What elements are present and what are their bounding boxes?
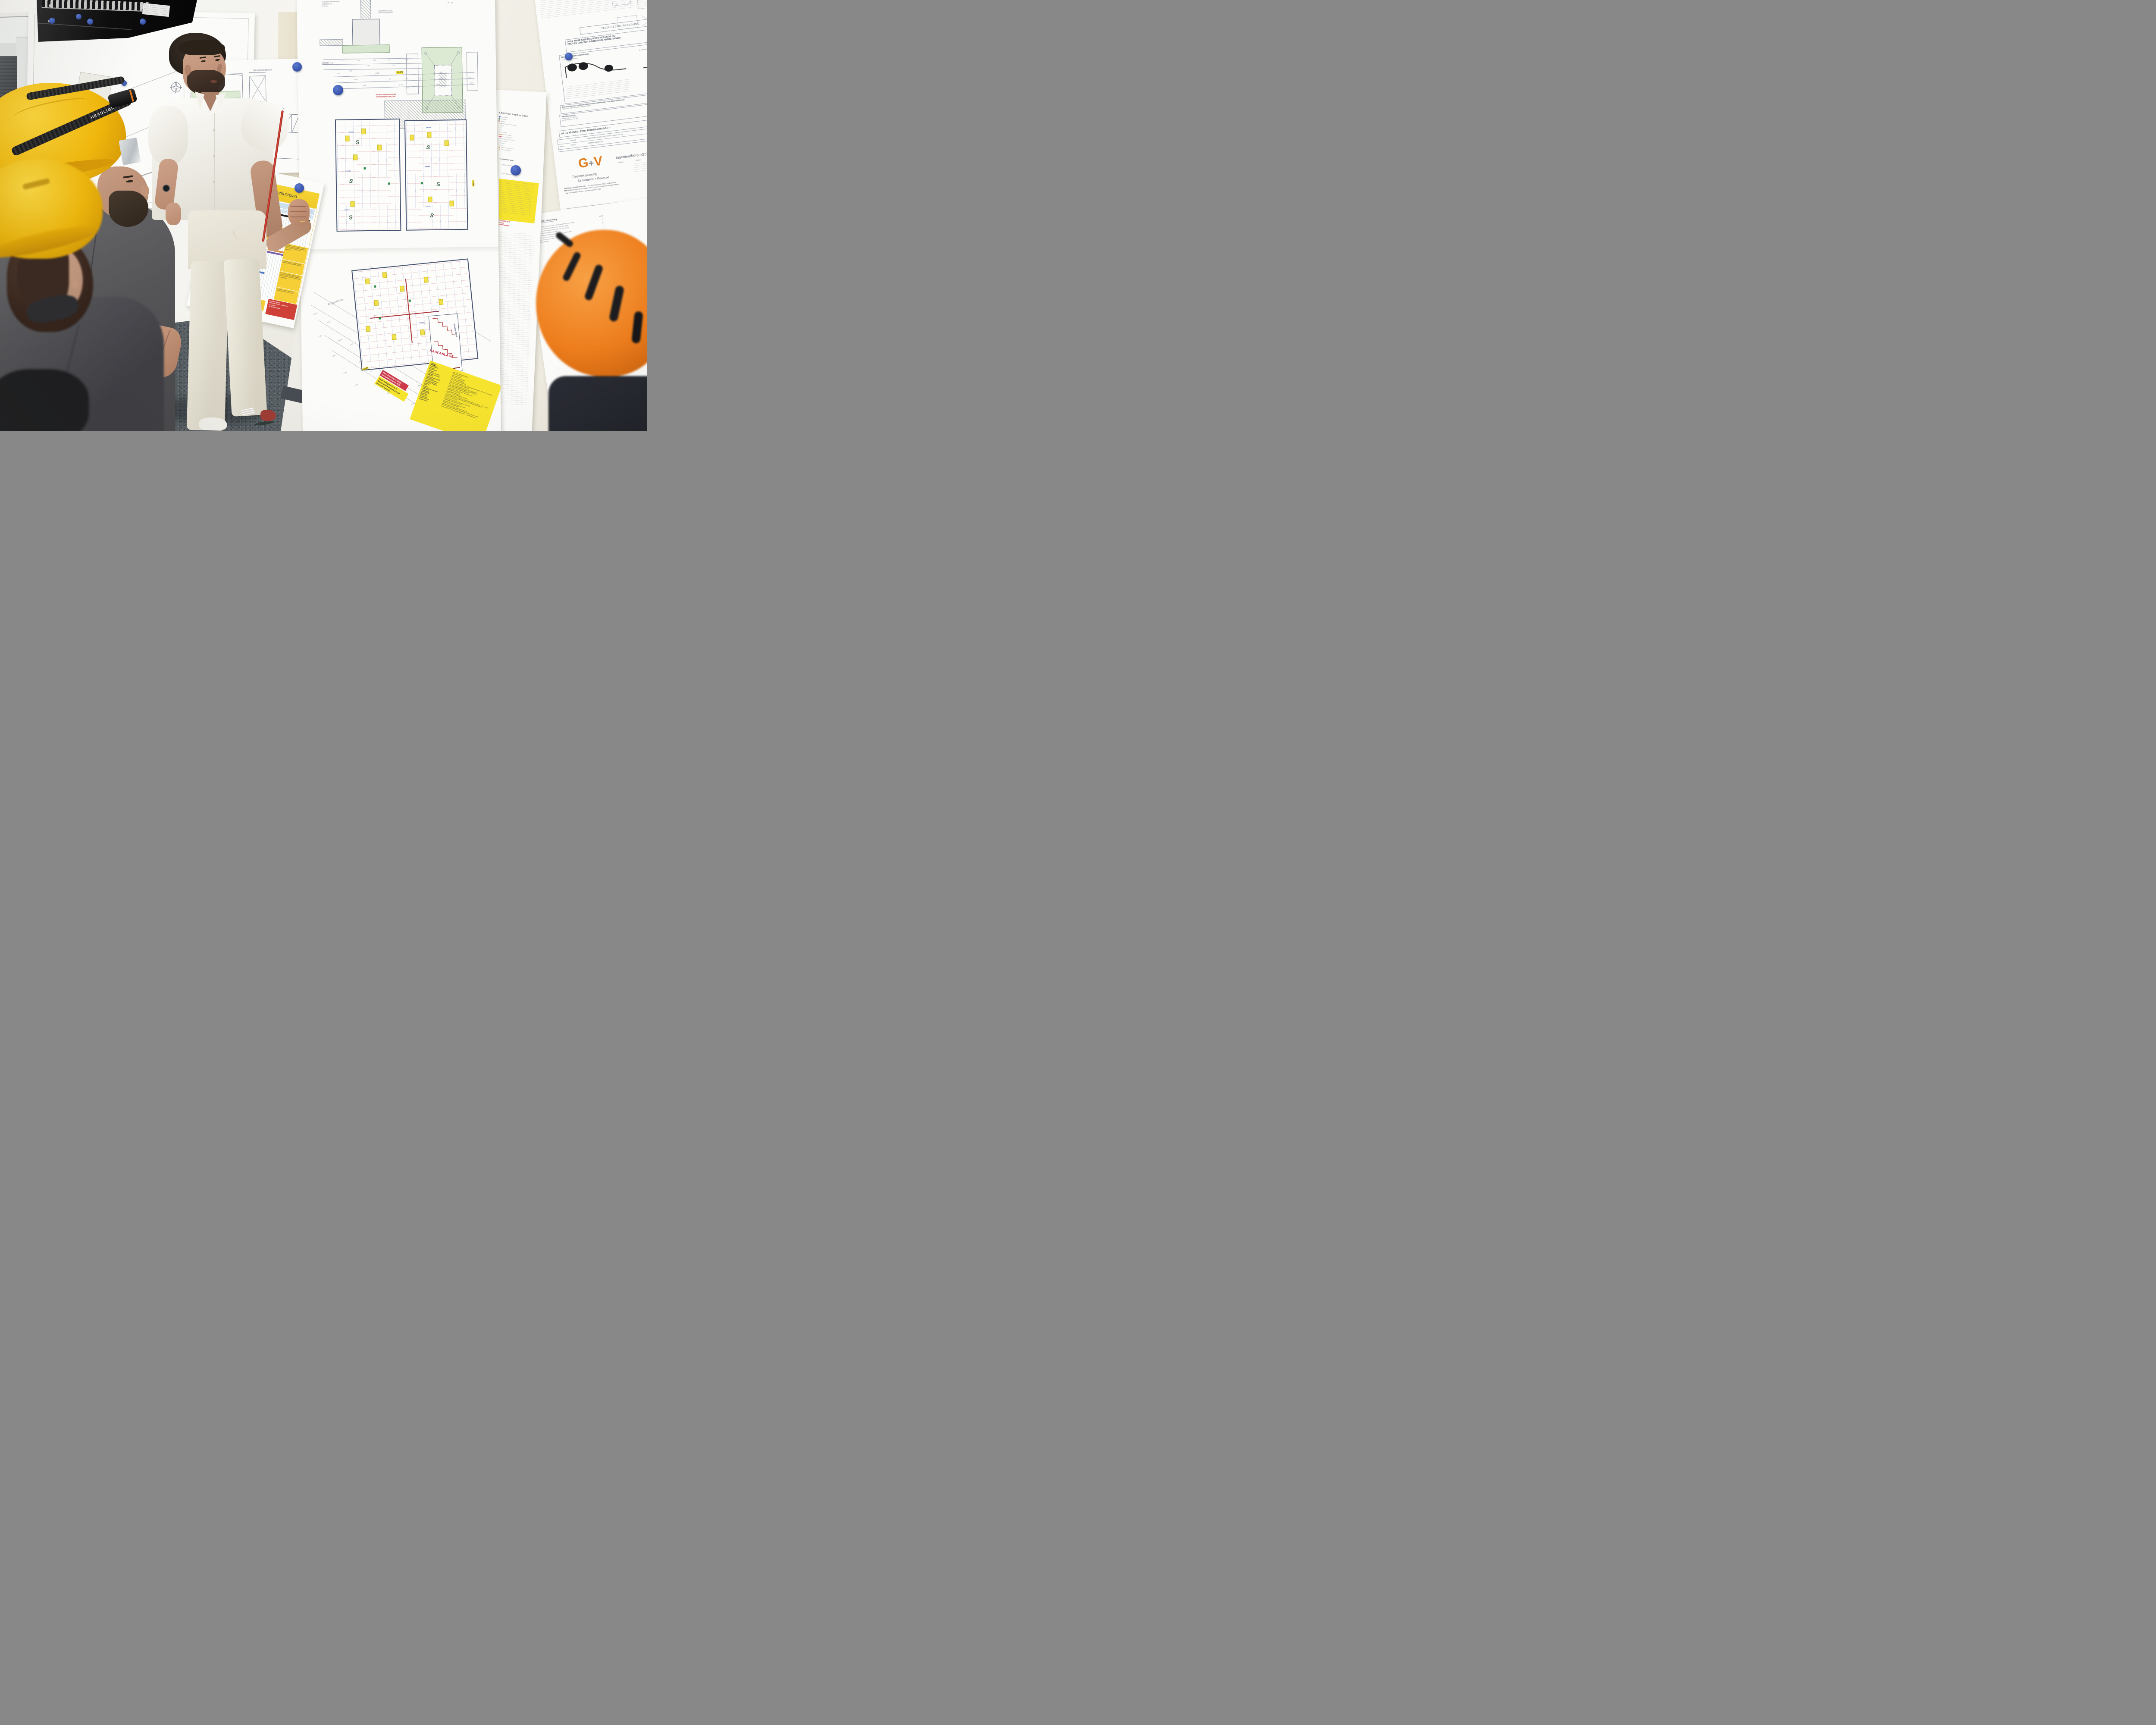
elt-qty: 4: [603, 227, 604, 228]
index-h2: DATUM: [571, 142, 588, 146]
finger-crease-3: [291, 216, 306, 217]
bend-table-lines: [565, 79, 630, 99]
index-h1: INDEX: [558, 144, 571, 148]
left-shoe: [199, 417, 227, 430]
shirt-button-1: [213, 129, 215, 131]
foundation-pad: [410, 135, 414, 140]
schnitt-label: SCHNITT 1 - 1: [322, 62, 333, 64]
blue-magnet: [292, 62, 302, 72]
elt-qty: 50: [602, 223, 604, 224]
og-dim: 6.060: [440, 77, 444, 79]
foundation-dim: 4.20: [392, 64, 395, 66]
foundation-pad: [366, 326, 370, 332]
gv-logo: G+V: [577, 154, 603, 172]
og-dim: 6.060: [354, 78, 357, 80]
foundation-dim: 1.10: [373, 60, 376, 61]
stair-id-2: 3001951: [419, 322, 424, 323]
foundation-pad: [423, 277, 428, 283]
elt-col2: Menge: [599, 215, 604, 217]
side-elevation-right: [467, 52, 478, 91]
foundation-pad: [353, 154, 357, 160]
og-dim: 2.800: [406, 87, 409, 89]
gv-partner1: Vielgut: [618, 161, 624, 163]
foreground-dark-blur: [0, 369, 89, 431]
construction-briefing-photo: Querschnitt Brücke Dachneigung 2% G+V SC…: [0, 0, 647, 431]
gv-partners: Vielgut Vielgut: [618, 159, 641, 163]
finger-crease-1: [291, 206, 306, 207]
blue-magnet: [333, 85, 343, 95]
foundation-pad: [345, 136, 349, 141]
og-dim: 6.465: [436, 84, 439, 85]
foundation-pocket: [352, 19, 380, 47]
og-right-grid: [406, 121, 466, 229]
foundation-pad: [445, 140, 449, 146]
og-dim-highlight: 15.470: [396, 71, 403, 74]
ring: [300, 220, 305, 223]
foundation-dim: 1.90: [367, 65, 369, 66]
og-dim: 15: [420, 78, 421, 79]
shirt-placket: [214, 113, 215, 214]
exit-icon: [374, 285, 376, 288]
foundation-dim: 40: [388, 59, 390, 61]
legend-rows: RegenwasserTrinkwasserAbwasserFäkalienha…: [495, 116, 545, 156]
room-id-label: 3002418: [346, 170, 351, 172]
access-note-line: SONDERKONSTRUKTION: [376, 96, 396, 98]
og-dim: 1.39: [470, 82, 473, 84]
presenter-left-hand: [166, 203, 181, 225]
blue-magnet: [295, 183, 304, 193]
foundation-dim: 2.10: [349, 70, 352, 72]
sticker-lines: [144, 4, 169, 16]
handwritten-s-mark: S: [348, 214, 353, 221]
compass-icon: [169, 81, 183, 94]
patch-panel-ports: [42, 0, 150, 12]
elt-qty: 2: [603, 225, 604, 226]
index-date: 24.08.25: [570, 138, 587, 141]
rack-screw-1: [49, 4, 51, 7]
bridge-detail-label: Querschnitt Brücke: [254, 69, 272, 72]
og-dim-right: 10.684: [472, 180, 474, 187]
legend-item-label: Graben für Ringerder: [501, 149, 511, 151]
exit-icon: [388, 182, 390, 185]
og-dim: 6.465: [363, 85, 366, 86]
elt-qty: 12: [602, 218, 603, 220]
foundation-dim: 1.18: [341, 60, 343, 62]
foundation-pad: [450, 201, 454, 206]
bend-diagram-b: [639, 50, 647, 71]
og-dim: 160: [468, 77, 470, 79]
room-id-label: 3002426: [425, 166, 430, 167]
foundation-pad: [377, 145, 382, 151]
foundation-pad: [400, 285, 404, 292]
presenter-left-sleeve: [148, 106, 188, 165]
field-label: TEIL:: [564, 192, 568, 194]
shoe-heel-red-patch: [260, 410, 276, 421]
og-dim: 15.150: [375, 72, 379, 74]
gv-fields: AUFTRAG- GEBER GMB GbR — Am Tannenberg 2…: [564, 177, 647, 194]
exit-icon: [409, 300, 411, 302]
foundation-dim: 40: [358, 60, 360, 61]
device-label-sticker: [142, 3, 170, 17]
rack-edge-highlight: [37, 22, 132, 30]
og-dim: 160: [337, 73, 339, 75]
blue-magnet: [87, 19, 93, 25]
og-dim: 2.000: [405, 78, 408, 80]
shirt-button-3: [213, 181, 215, 183]
foundation-pad: [392, 334, 396, 340]
foundation-plan-sheet: KÖCHERFUNDAMENT SCHALPLAN M. 1:25 KÖCHER…: [297, 0, 501, 431]
room-id-label: 3002419: [348, 131, 354, 133]
handwritten-s-mark: S: [355, 139, 360, 146]
foundation-titles: KÖCHERFUNDAMENT SCHALPLAN M. 1:25: [322, 0, 340, 7]
found-title3: M. 1:25: [322, 5, 340, 7]
scale-note: M 1:25: [448, 1, 453, 3]
blue-magnet: [49, 18, 55, 24]
foundation-pad: [420, 329, 425, 336]
access-note: ZUGANG OBERGESCHOSS SONDERKONSTRUKTION: [376, 94, 396, 98]
circle-symbol-icon: [499, 116, 501, 118]
stair-id-1: 3001950: [433, 310, 438, 312]
gv-firm: Ingenieurbüro eGbR: [616, 151, 647, 160]
foundation-pad: [351, 201, 355, 207]
index-h3: ART DER ÄNDERUNG: [588, 141, 603, 144]
exit-icon: [379, 317, 381, 320]
foundation-pad: [428, 197, 432, 202]
presenter-left-leg: [187, 261, 229, 431]
foundation-pad: [427, 132, 431, 138]
finger-crease-2: [290, 211, 307, 212]
gv-partner2: Vielgut: [635, 159, 641, 161]
exit-icon: [364, 167, 366, 169]
foundation-pad: [439, 299, 443, 305]
wall-note-line: GLATTE SCHALUNG: [378, 12, 393, 14]
blue-magnet: [140, 19, 146, 25]
diamond-symbol-icon: [498, 118, 500, 120]
woman-nose: [72, 279, 78, 288]
wall-note: KÖCHERWANDUNG GLATTE SCHALUNG: [378, 10, 393, 14]
room-id-label: 3002417: [345, 209, 350, 211]
exit-icon: [421, 182, 423, 184]
index-a: 'A': [558, 140, 570, 143]
foundation-pad: [361, 129, 366, 134]
og-dim: 15: [389, 78, 391, 80]
handwritten-s-mark: S: [436, 181, 440, 188]
shirt-button-2: [213, 155, 215, 157]
presenter-mouth: [210, 80, 217, 83]
foundation-green-slab: [342, 44, 389, 53]
orange-worker-jacket: [548, 376, 647, 431]
blue-magnet: [76, 14, 81, 19]
gv-logo-v: V: [593, 154, 603, 169]
foundation-pad: [382, 272, 387, 278]
blue-magnet: [511, 165, 521, 176]
room-id-label: 3002425: [426, 127, 431, 129]
presenter-hair-fringe: [179, 40, 225, 55]
foundation-left-slab: [320, 39, 343, 46]
legend-item-label: Gas: [500, 127, 502, 129]
foundation-pad: [365, 279, 370, 285]
foundation-pad: [374, 300, 379, 306]
room-id-label: 3002423: [426, 205, 431, 207]
presenter-ear: [185, 65, 191, 75]
torch-orange-ring: [129, 90, 134, 102]
presenter-beard: [187, 70, 225, 96]
elt-qty: 22: [602, 220, 603, 222]
og-dim: 160: [440, 72, 442, 73]
og-dim: 2.220: [399, 84, 403, 86]
wristwatch: [163, 185, 170, 192]
blue-magnet: [565, 53, 573, 60]
presenter-fist: [288, 199, 310, 226]
